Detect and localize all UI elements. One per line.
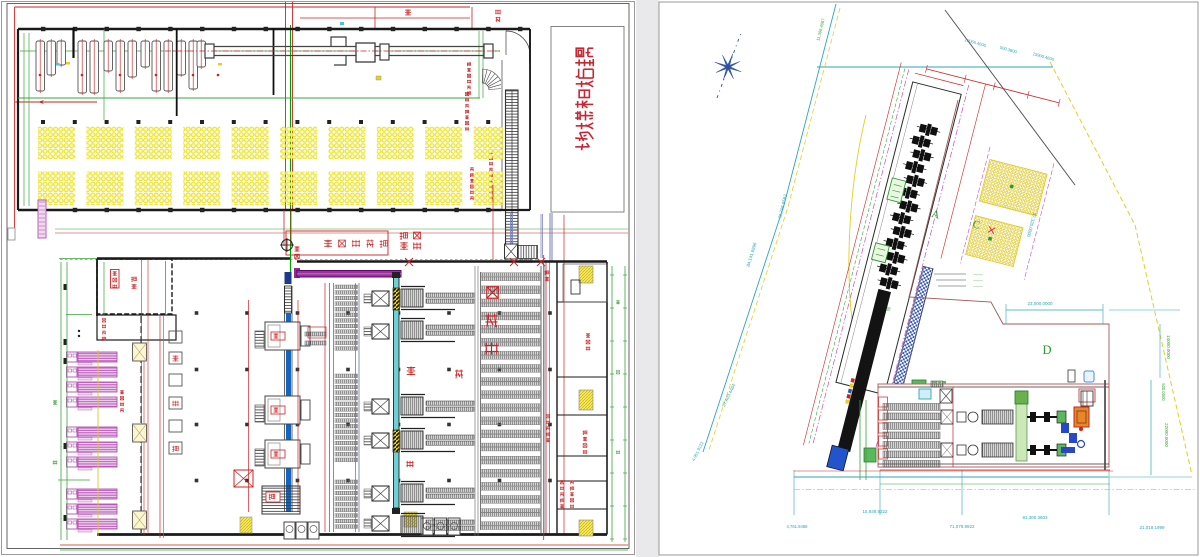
svg-text:———: ———	[973, 285, 983, 289]
svg-text:14000.0000: 14000.0000	[1166, 335, 1171, 359]
svg-text:21,018.1999: 21,018.1999	[1139, 525, 1165, 530]
svg-text:———: ———	[973, 273, 983, 277]
svg-text:D: D	[1042, 343, 1051, 357]
svg-text:15,939.9322: 15,939.9322	[862, 509, 888, 514]
svg-text:71,079.9922: 71,079.9922	[949, 524, 975, 529]
svg-text:500.0000: 500.0000	[1161, 383, 1166, 401]
svg-text:22000.0000: 22000.0000	[1164, 423, 1169, 447]
svg-text:23,000.0000: 23,000.0000	[1027, 301, 1053, 306]
svg-text:81,300.3603: 81,300.3603	[1022, 515, 1048, 520]
svg-text:———: ———	[973, 279, 983, 283]
svg-text:4,761.9488: 4,761.9488	[787, 524, 809, 529]
